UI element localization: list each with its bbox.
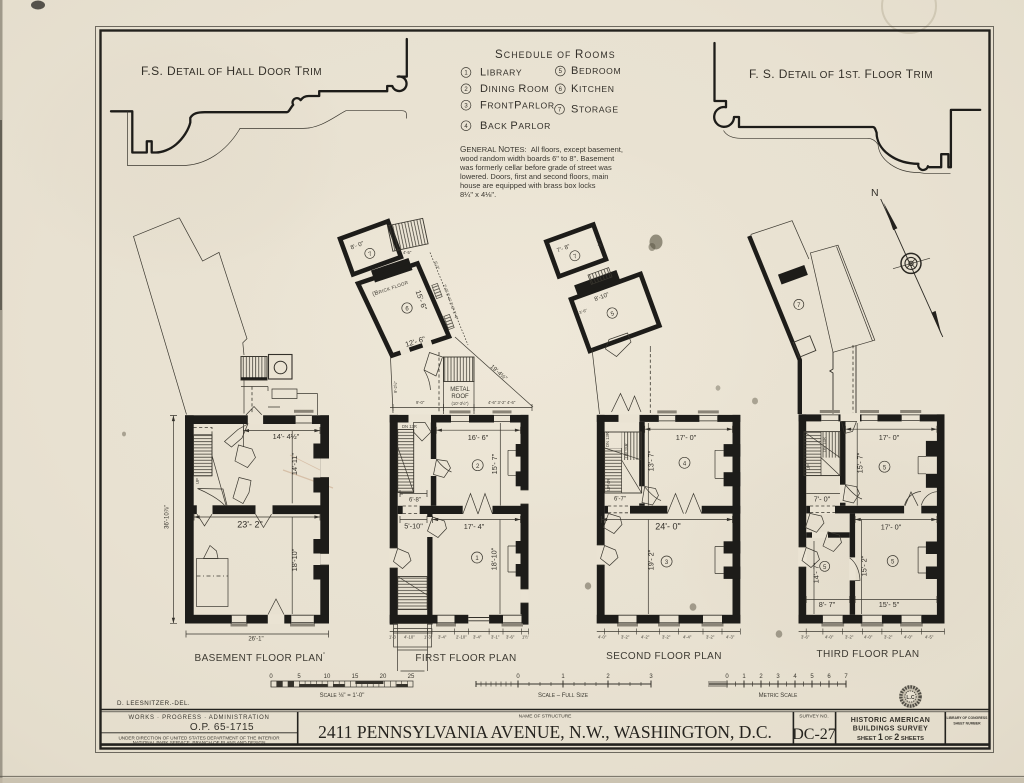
svg-text:15'- 2": 15'- 2" [860,555,869,576]
svg-text:10: 10 [324,674,331,680]
svg-text:THIRD FLOOR PLAN: THIRD FLOOR PLAN [816,649,919,660]
svg-text:4'-0": 4'-0" [904,635,913,640]
svg-text:1'-3: 1'-3 [389,635,397,640]
svg-text:6'-8": 6'-8" [409,498,421,504]
svg-text:HISTORIC AMERICAN: HISTORIC AMERICAN [851,717,931,724]
svg-text:1½': 1½' [522,635,529,640]
svg-text:UP: UP [195,478,200,484]
svg-text:3'-1": 3'-1" [491,635,500,640]
svg-text:2411 PENNSYLVANIA AVENUE, N.W.: 2411 PENNSYLVANIA AVENUE, N.W., WASHINGT… [318,722,772,742]
svg-text:BACK PARLOR: BACK PARLOR [480,120,551,132]
svg-text:3'-4": 3'-4" [473,635,482,640]
svg-text:NAME OF STRUCTURE: NAME OF STRUCTURE [519,714,572,720]
svg-text:house are equipped with brass: house are equipped with brass box locks [460,181,596,190]
svg-text:ROOF: ROOF [451,394,469,400]
svg-text:7'- 0": 7'- 0" [814,495,831,504]
svg-text:(10'-3½"): (10'-3½") [452,401,470,406]
svg-text:15'- 5": 15'- 5" [879,600,900,609]
svg-text:DINING ROOM: DINING ROOM [480,83,549,95]
svg-text:17'- 4": 17'- 4" [464,522,485,531]
svg-text:BUILDINGS SURVEY: BUILDINGS SURVEY [853,726,929,733]
svg-text:2'-10": 2'-10" [456,635,467,640]
svg-text:UP: UP [806,464,811,470]
svg-text:DN 14R: DN 14R [822,437,827,452]
svg-text:DN 13R: DN 13R [605,432,610,447]
svg-text:15'- 7": 15'- 7" [856,452,865,473]
svg-text:DC-27: DC-27 [792,726,836,743]
svg-text:D. LEESNITZER.-DEL.: D. LEESNITZER.-DEL. [117,700,190,707]
svg-text:3'-2": 3'-2" [884,635,893,640]
svg-text:24'- 0": 24'- 0" [655,522,680,532]
svg-text:1'-3": 1'-3" [424,635,433,640]
svg-text:36'-10⅞": 36'-10⅞" [165,505,171,529]
svg-text:METAL: METAL [450,387,470,393]
svg-text:3'-2": 3'-2" [662,635,671,640]
svg-text:3'-6": 3'-6" [506,635,515,640]
svg-text:wood random width boards 6" to: wood random width boards 6" to 8". Basem… [459,154,615,163]
svg-text:25: 25 [408,674,415,680]
svg-text:LIBRARY: LIBRARY [480,67,522,79]
svg-text:8¼" x 4⅛".: 8¼" x 4⅛". [460,190,496,199]
svg-text:16'- 6": 16'- 6" [468,433,489,442]
svg-text:9'-0": 9'-0" [416,400,425,405]
svg-text:N: N [871,187,879,199]
svg-text:GENERAL NOTES: All floors, ex: GENERAL NOTES: All floors, except baseme… [460,145,623,154]
svg-text:3'-4": 3'-4" [438,635,447,640]
svg-text:4'-2": 4'-2" [641,635,650,640]
svg-text:15'- 7": 15'- 7" [490,453,499,474]
svg-text:LIBRARY OF CONGRESS: LIBRARY OF CONGRESS [947,716,989,720]
svg-text:was formerly cellar before gra: was formerly cellar before grade of stre… [459,163,612,172]
svg-text:14'-11": 14'-11" [290,453,299,476]
svg-text:17'- 0": 17'- 0" [676,433,697,442]
svg-text:18'-10": 18'-10" [290,548,299,571]
svg-text:14'- 4½": 14'- 4½" [273,432,300,441]
svg-text:5'-10": 5'-10" [404,522,423,531]
svg-text:METRIC SCALE: METRIC SCALE [759,693,798,699]
svg-text:8'- 7": 8'- 7" [819,600,836,609]
svg-text:3'-2": 3'-2" [706,635,715,640]
svg-text:SHEET NUMBER: SHEET NUMBER [953,722,981,726]
svg-text:NATIONAL PARK SERVICE, BRANCH: NATIONAL PARK SERVICE, BRANCH OF PLANS A… [133,740,266,745]
svg-text:4'-5": 4'-5" [403,250,412,255]
svg-text:4'-10": 4'-10" [404,635,415,640]
svg-text:O.P. 65-1715: O.P. 65-1715 [190,722,254,733]
svg-text:FIRST FLOOR PLAN: FIRST FLOOR PLAN [415,653,516,664]
svg-text:FRONTPARLOR: FRONTPARLOR [480,99,555,111]
svg-text:UP 15R: UP 15R [624,443,629,458]
svg-text:4'-0": 4'-0" [598,635,607,640]
svg-text:4'-4": 4'-4" [683,635,692,640]
svg-text:SCALE ⅛" = 1'-0": SCALE ⅛" = 1'-0" [320,693,365,699]
svg-text:F.S. DETAIL OF HALL DOOR TRIM: F.S. DETAIL OF HALL DOOR TRIM [141,64,322,78]
svg-text:3'-2": 3'-2" [845,635,854,640]
svg-text:17'- 0": 17'- 0" [881,523,902,532]
svg-text:WORKS · PROGRESS · ADMINISTRAT: WORKS · PROGRESS · ADMINISTRATION [129,715,270,721]
svg-text:9'-2½": 9'-2½" [393,381,398,393]
svg-text:4'-0": 4'-0" [825,635,834,640]
svg-text:23'- 2": 23'- 2" [237,520,262,530]
svg-text:15: 15 [352,674,359,680]
svg-text:20: 20 [380,674,387,680]
svg-text:F. S. DETAIL OF 1ST. FLOOR TRI: F. S. DETAIL OF 1ST. FLOOR TRIM [749,67,933,81]
svg-text:26'-1": 26'-1" [248,637,263,643]
svg-text:4'-5": 4'-5" [925,635,934,640]
svg-text:4'-0": 4'-0" [864,635,873,640]
svg-text:3'-2": 3'-2" [621,635,630,640]
svg-text:UP 4R: UP 4R [606,479,611,491]
svg-text:4'-3": 4'-3" [726,635,735,640]
svg-text:BASEMENT FLOOR PLAN”: BASEMENT FLOOR PLAN” [195,653,326,664]
svg-text:STORAGE: STORAGE [571,103,619,115]
svg-text:17'- 0": 17'- 0" [879,433,900,442]
svg-text:3'-6": 3'-6" [801,635,810,640]
svg-text:L.C: L.C [906,695,915,701]
svg-text:BEDROOM: BEDROOM [571,65,621,77]
svg-text:DN 13R: DN 13R [402,424,417,429]
svg-text:KITCHEN: KITCHEN [571,83,615,95]
svg-text:14'- 7": 14'- 7" [812,562,821,583]
svg-text:13'- 7": 13'- 7" [647,450,656,471]
svg-text:6'-7": 6'-7" [614,497,626,503]
svg-text:SCALE – FULL SIZE: SCALE – FULL SIZE [538,693,589,699]
svg-text:4'-6" 3'-2" 4'-6": 4'-6" 3'-2" 4'-6" [488,400,516,405]
svg-text:18'-10": 18'-10" [490,547,499,570]
svg-text:lowered. Doors, first and sec: lowered. Doors, first and second floors,… [460,172,608,181]
svg-text:19'- 2": 19'- 2" [647,549,656,570]
svg-text:SCHEDULE OF ROOMS: SCHEDULE OF ROOMS [495,49,616,61]
svg-text:SURVEY NO.: SURVEY NO. [799,714,828,720]
svg-text:SECOND FLOOR PLAN: SECOND FLOOR PLAN [606,651,722,662]
